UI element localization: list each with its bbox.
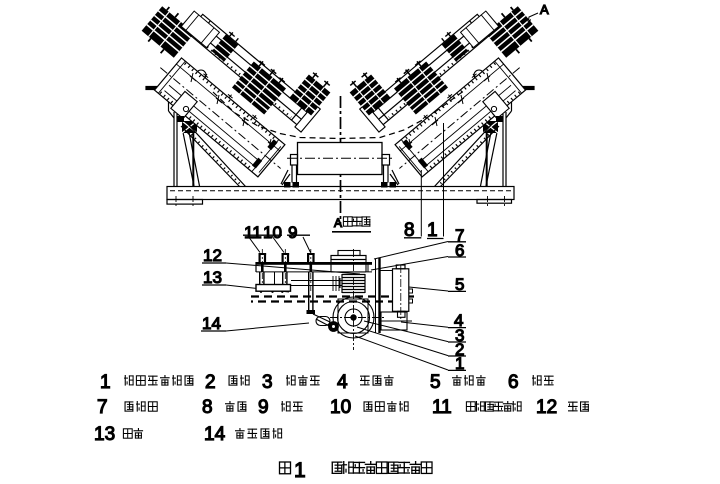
svg-text:10: 10 (330, 397, 351, 418)
svg-text:8: 8 (202, 397, 213, 418)
svg-text:9: 9 (258, 397, 269, 418)
svg-text:11: 11 (432, 397, 452, 418)
svg-text:11: 11 (244, 223, 262, 242)
svg-text:12: 12 (536, 397, 557, 418)
svg-text:7: 7 (97, 397, 108, 418)
svg-text:A: A (540, 2, 549, 17)
svg-text:2: 2 (205, 372, 216, 393)
svg-text:14: 14 (202, 314, 221, 333)
svg-text:9: 9 (288, 223, 297, 242)
svg-text:12: 12 (203, 246, 222, 265)
svg-text:4: 4 (337, 372, 348, 393)
svg-text:10: 10 (263, 223, 282, 242)
svg-text:3: 3 (262, 372, 273, 393)
svg-text:5: 5 (430, 372, 441, 393)
svg-text:13: 13 (203, 268, 222, 287)
svg-text:A: A (334, 216, 342, 230)
svg-text:1: 1 (100, 372, 111, 393)
svg-text:13: 13 (94, 424, 115, 445)
svg-text:6: 6 (508, 372, 519, 393)
svg-text:14: 14 (204, 424, 226, 445)
svg-text:1: 1 (294, 459, 306, 482)
